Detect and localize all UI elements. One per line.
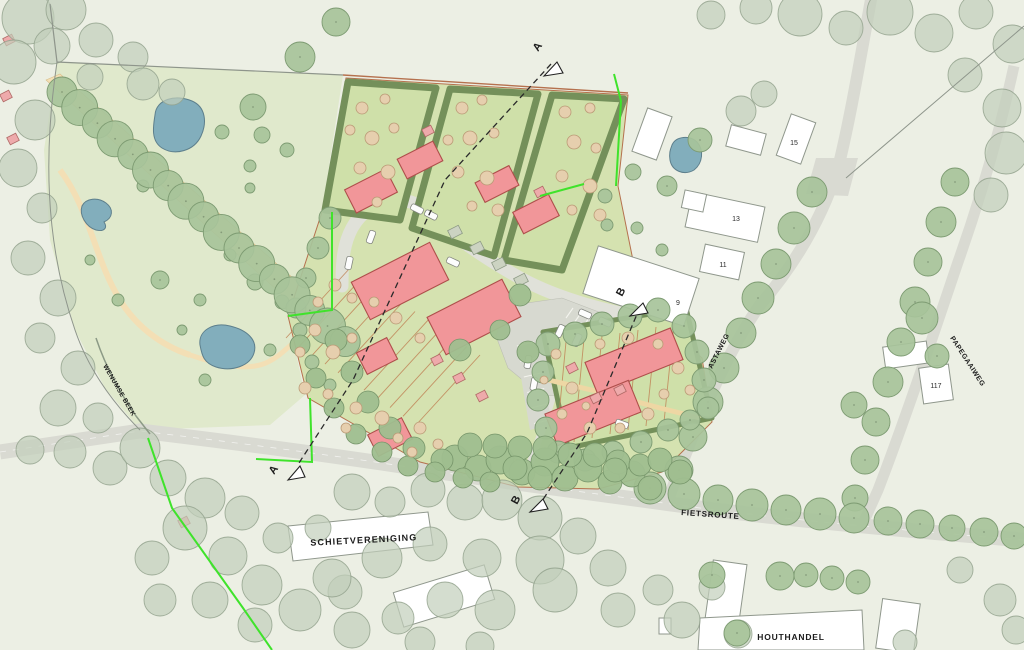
garden-shrub [659, 389, 669, 399]
tree [915, 14, 953, 52]
tree-center [951, 527, 953, 529]
garden-shrub [415, 333, 425, 343]
tree-center [667, 429, 669, 431]
tree [601, 219, 613, 231]
orchard-tree [398, 456, 418, 476]
tree-center [736, 632, 738, 634]
tree [475, 590, 515, 630]
tree [598, 189, 612, 203]
garden-shrub [477, 95, 487, 105]
tree [601, 593, 635, 627]
tree-center [640, 441, 642, 443]
tree [279, 589, 321, 631]
tree-center [1013, 535, 1015, 537]
garden-shrub [375, 411, 389, 425]
garden-shrub [354, 162, 366, 174]
tree-center [542, 371, 544, 373]
tree [112, 294, 124, 306]
garden-shrub [492, 204, 504, 216]
tree [280, 143, 294, 157]
tree [25, 323, 55, 353]
garden-shrub [480, 171, 494, 185]
tree [334, 474, 370, 510]
tree [631, 222, 643, 234]
tree [427, 582, 463, 618]
garden-shrub [556, 170, 568, 182]
garden-shrub [489, 128, 499, 138]
tree [590, 550, 626, 586]
garden-shrub [595, 339, 605, 349]
tree [974, 178, 1008, 212]
orchard-tree [509, 284, 531, 306]
tree [242, 565, 282, 605]
tree-center [723, 367, 725, 369]
tree-center [864, 459, 866, 461]
tree-center [547, 343, 549, 345]
tree-center [252, 106, 254, 108]
tree [664, 602, 700, 638]
orchard-tree [453, 468, 473, 488]
garden-shrub [591, 143, 601, 153]
tree [15, 100, 55, 140]
tree-center [854, 497, 856, 499]
garden-shrub [567, 205, 577, 215]
orchard-tree [503, 456, 527, 480]
orchard-tree [583, 443, 607, 467]
tree-center [740, 332, 742, 334]
garden-shrub [389, 123, 399, 133]
tree-center [114, 138, 116, 140]
tree [118, 42, 148, 72]
tree [893, 630, 917, 650]
tree-center [853, 517, 855, 519]
tree-center [785, 509, 787, 511]
tree-center [545, 427, 547, 429]
tree-center [887, 381, 889, 383]
tree-center [79, 107, 81, 109]
orchard-tree [372, 442, 392, 462]
garden-shrub [393, 433, 403, 443]
tree [413, 527, 447, 561]
tree-center [274, 278, 276, 280]
tree-center [309, 310, 311, 312]
tree-center [757, 297, 759, 299]
garden-shrub [323, 389, 333, 399]
garden-shrub [347, 293, 357, 303]
garden-shrub [672, 362, 684, 374]
tree-center [159, 279, 161, 281]
house-number-11: 11 [719, 262, 726, 269]
tree-center [936, 355, 938, 357]
orchard-tree [528, 466, 552, 490]
garden-shrub [329, 279, 341, 291]
orchard-tree [449, 339, 471, 361]
garden-shrub [452, 166, 464, 178]
tree [1001, 523, 1024, 549]
orchard-tree [533, 436, 557, 460]
tree-center [692, 436, 694, 438]
tree-center [317, 247, 319, 249]
garden-shrub [433, 439, 443, 449]
tree-center [819, 513, 821, 515]
tree [263, 523, 293, 553]
tree-center [657, 309, 659, 311]
tree [83, 403, 113, 433]
tree-center [185, 200, 187, 202]
tree [79, 23, 113, 57]
tree [984, 584, 1016, 616]
tree-center [256, 263, 258, 265]
tree [947, 557, 973, 583]
site-plan-map: A A B B FIETSROUTE SCHIETVERENIGING HOUT… [0, 0, 1024, 650]
garden-shrub [642, 408, 654, 420]
orchard-tree [668, 460, 692, 484]
garden-shrub [594, 209, 606, 221]
tree [77, 64, 103, 90]
garden-shrub [407, 447, 417, 457]
tree [382, 602, 414, 634]
tree [199, 374, 211, 386]
garden-shrub [653, 339, 663, 349]
tree [560, 518, 596, 554]
tree [194, 294, 206, 306]
tree-center [887, 520, 889, 522]
tree [40, 280, 76, 316]
tree-center [954, 181, 956, 183]
garden-shrub [347, 333, 357, 343]
orchard-tree [629, 454, 651, 476]
tree [135, 541, 169, 575]
garden-shrub [309, 324, 321, 336]
tree [983, 89, 1021, 127]
tree [656, 244, 668, 256]
orchard-tree [638, 476, 662, 500]
garden-shrub [557, 409, 567, 419]
orchard-tree [425, 462, 445, 482]
garden-shrub [467, 201, 477, 211]
tree-center [857, 581, 859, 583]
tree [264, 344, 276, 356]
tree-center [167, 185, 169, 187]
tree-center [853, 404, 855, 406]
garden-shrub [463, 131, 477, 145]
house-number-15: 15 [790, 140, 798, 147]
tree-center [919, 523, 921, 525]
tree-center [875, 421, 877, 423]
tree-center [220, 232, 222, 234]
tree [150, 460, 186, 496]
tree [751, 81, 777, 107]
tree [85, 255, 95, 265]
house-number-13: 13 [732, 216, 740, 223]
tree [215, 125, 229, 139]
tree [27, 193, 57, 223]
tree [985, 132, 1024, 174]
orchard-tree [483, 434, 507, 458]
house-number-9: 9 [676, 300, 680, 307]
tree [159, 79, 185, 105]
tree [463, 539, 501, 577]
tree [533, 568, 577, 612]
garden-shrub [381, 165, 395, 179]
garden-shrub [540, 376, 548, 384]
garden-shrub [356, 102, 368, 114]
tree-center [327, 325, 329, 327]
tree-center [811, 191, 813, 193]
garden-shrub [369, 297, 379, 307]
site-plan-page: A A B B FIETSROUTE SCHIETVERENIGING HOUT… [0, 0, 1024, 650]
garden-shrub [313, 297, 323, 307]
tree [61, 351, 95, 385]
tree [225, 496, 259, 530]
tree [697, 1, 725, 29]
tree-center [805, 574, 807, 576]
tree [305, 355, 319, 369]
tree [643, 575, 673, 605]
tree [120, 428, 160, 468]
tree [959, 0, 993, 29]
tree-center [335, 21, 337, 23]
garden-shrub [365, 131, 379, 145]
tree [245, 183, 255, 193]
garden-shrub [559, 106, 571, 118]
tree-center [97, 122, 99, 124]
tree [625, 164, 641, 180]
tree [16, 436, 44, 464]
garden-shrub [622, 332, 634, 344]
tree-center [537, 399, 539, 401]
orchard-tree [517, 341, 539, 363]
tree-center [601, 323, 603, 325]
label-houthandel: HOUTHANDEL [757, 632, 825, 642]
garden-shrub [566, 382, 578, 394]
garden-shrub [372, 197, 382, 207]
tree-center [717, 499, 719, 501]
tree-center [940, 221, 942, 223]
tree [829, 11, 863, 45]
tree [0, 149, 37, 187]
orchard-tree [458, 433, 482, 457]
tree-center [831, 577, 833, 579]
tree [375, 487, 405, 517]
tree [254, 127, 270, 143]
tree [192, 582, 228, 618]
garden-shrub [567, 135, 581, 149]
garden-shrub [551, 349, 561, 359]
garden-shrub [295, 347, 305, 357]
tree [244, 160, 256, 172]
garden-shrub [390, 312, 402, 324]
garden-shrub [350, 402, 362, 414]
tree-center [291, 294, 293, 296]
orchard-tree [480, 472, 500, 492]
tree-center [707, 407, 709, 409]
garden-shrub [443, 135, 453, 145]
tree-center [900, 341, 902, 343]
garden-shrub [380, 94, 390, 104]
tree [11, 241, 45, 275]
tree-center [711, 574, 713, 576]
garden-shrub [456, 102, 468, 114]
tree-center [666, 185, 668, 187]
house-number-117: 117 [930, 383, 941, 390]
tree-center [921, 317, 923, 319]
tree [144, 584, 176, 616]
tree-center [775, 263, 777, 265]
garden-shrub [583, 179, 597, 193]
tree-center [238, 247, 240, 249]
tree-center [305, 277, 307, 279]
garden-shrub [326, 345, 340, 359]
garden-shrub [414, 422, 426, 434]
tree-center [927, 261, 929, 263]
tree-center [689, 419, 691, 421]
tree-center [914, 301, 916, 303]
tree-center [574, 333, 576, 335]
tree [34, 28, 70, 64]
tree-center [793, 227, 795, 229]
tree-center [683, 325, 685, 327]
garden-shrub [341, 423, 351, 433]
garden-shrub [582, 402, 590, 410]
tree-center [61, 91, 63, 93]
tree-center [150, 169, 152, 171]
tree-center [329, 217, 331, 219]
tree-center [132, 154, 134, 156]
tree-center [779, 575, 781, 577]
garden-shrub [685, 385, 695, 395]
tree-center [699, 139, 701, 141]
garden-shrub [584, 422, 596, 434]
tree [726, 96, 756, 126]
tree [447, 484, 483, 520]
orchard-tree [603, 458, 627, 482]
garden-shrub [585, 103, 595, 113]
garden-shrub [299, 382, 311, 394]
tree [54, 436, 86, 468]
garden-shrub [345, 125, 355, 135]
white-building [681, 190, 706, 212]
tree [40, 390, 76, 426]
tree-center [683, 493, 685, 495]
tree [334, 612, 370, 648]
tree [177, 325, 187, 335]
tree-center [703, 379, 705, 381]
tree-center [203, 216, 205, 218]
tree-center [983, 531, 985, 533]
orchard-tree [490, 320, 510, 340]
tree-center [751, 504, 753, 506]
tree [127, 68, 159, 100]
garden-shrub [615, 423, 625, 433]
tree-center [696, 351, 698, 353]
tree-center [299, 56, 301, 58]
tree [313, 559, 351, 597]
